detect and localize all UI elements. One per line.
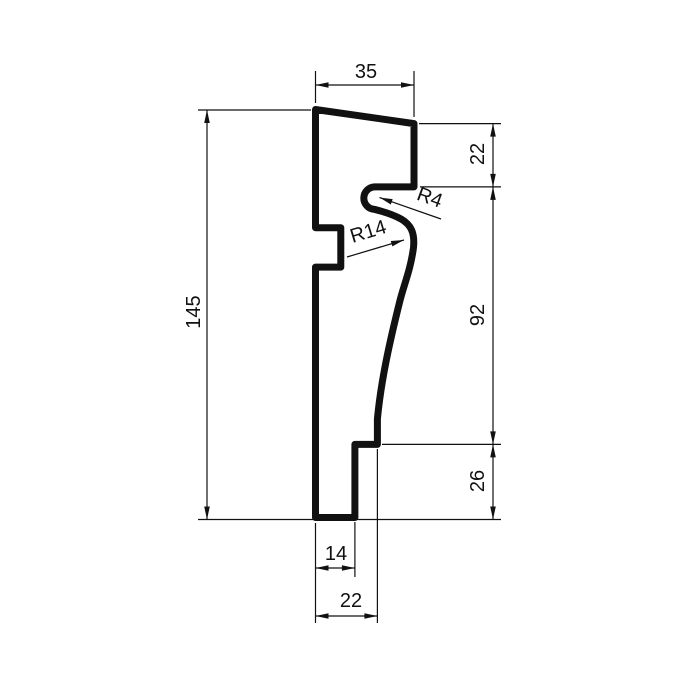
dimension-top-width: 35: [316, 61, 415, 88]
dimension-bottom-outer: 22: [316, 590, 378, 619]
radius-label-r4: R4: [414, 183, 446, 212]
dim-label-right-lower: 26: [467, 470, 489, 492]
dim-label-top-width: 35: [355, 61, 377, 83]
drawing-canvas: 35 145 22 92 26 14 22 R4: [0, 0, 686, 686]
dimension-bottom-inner: 14: [316, 543, 355, 571]
dim-label-right-upper: 22: [467, 143, 489, 165]
profile-technical-drawing: 35 145 22 92 26 14 22 R4: [0, 0, 686, 686]
dim-label-bottom-inner: 14: [325, 543, 347, 565]
dimension-right-chain: 22 92 26: [467, 124, 496, 520]
dim-label-left-height: 145: [183, 295, 205, 328]
molding-profile-outline: [316, 110, 415, 518]
dim-label-right-middle: 92: [467, 304, 489, 326]
dimension-left-height: 145: [183, 110, 210, 520]
dim-label-bottom-outer: 22: [340, 590, 362, 612]
